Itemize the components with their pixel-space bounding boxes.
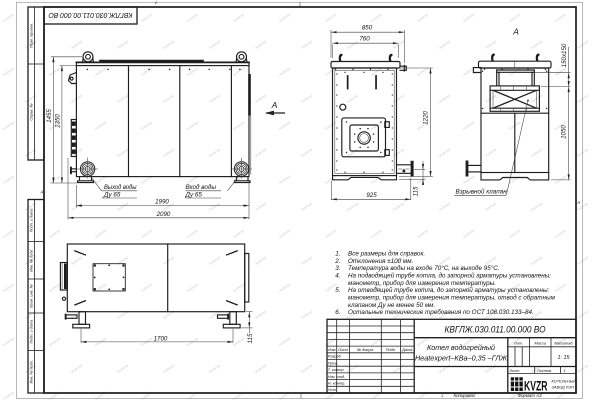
svg-text:клапаном Ду не менее 50 мм.: клапаном Ду не менее 50 мм. (348, 302, 435, 309)
svg-text:А: А (40, 190, 44, 195)
svg-text:Справ. №: Справ. № (30, 103, 34, 120)
svg-text:Отклонения ±100 мм.: Отклонения ±100 мм. (348, 258, 413, 265)
svg-text:ЗАВОД РЭП: ЗАВОД РЭП (552, 384, 575, 389)
svg-text:2.: 2. (334, 258, 340, 265)
svg-text:Формат А3: Формат А3 (518, 393, 543, 398)
svg-text:4.: 4. (335, 272, 340, 279)
svg-text:Нач. отд.: Нач. отд. (328, 374, 345, 379)
svg-text:5.: 5. (335, 287, 340, 294)
svg-text:Утв.: Утв. (328, 387, 337, 392)
svg-text:На подводящей трубе котла, до: На подводящей трубе котла, до запорной а… (348, 271, 551, 279)
svg-text:Т. контр.: Т. контр. (328, 367, 345, 372)
svg-text:манометр, прибор для измерения: манометр, прибор для измерения температу… (348, 279, 496, 287)
svg-text:Дата: Дата (401, 347, 413, 352)
svg-text:Остальные технические требован: Остальные технические требования по ОСТ … (348, 308, 534, 316)
svg-text:850: 850 (362, 25, 373, 32)
svg-text:1350: 1350 (55, 114, 62, 128)
svg-text:Выход воды: Выход воды (104, 183, 137, 191)
svg-text:№ докум.: № докум. (357, 347, 374, 352)
svg-text:Разраб.: Разраб. (328, 354, 342, 359)
svg-text:Подп. и дата: Подп. и дата (30, 320, 34, 344)
svg-text:925: 925 (366, 192, 377, 199)
svg-text:Температура воды на входе 70°С: Температура воды на входе 70°С, на выход… (348, 264, 500, 272)
svg-text:1: 1 (564, 368, 566, 373)
svg-text:А: А (271, 100, 278, 110)
svg-text:Инв. № дубл.: Инв. № дубл. (30, 249, 34, 272)
svg-text:KVZR: KVZR (524, 379, 548, 394)
svg-text:1455: 1455 (46, 109, 53, 123)
svg-text:КОТЕЛЬНЫЙ: КОТЕЛЬНЫЙ (552, 379, 577, 384)
svg-text:2090: 2090 (156, 211, 171, 218)
svg-text:Взам. инв. №: Взам. инв. № (30, 284, 34, 307)
svg-text:115: 115 (247, 333, 254, 343)
svg-text:6.: 6. (335, 309, 340, 316)
svg-text:3.: 3. (335, 265, 340, 272)
svg-text:Лит.: Лит. (513, 340, 523, 345)
svg-text:Подп.: Подп. (386, 347, 396, 352)
svg-text:Лист: Лист (509, 368, 521, 373)
svg-text:манометр, прибор для измерения: манометр, прибор для измерения температу… (348, 294, 556, 302)
svg-text:150х150: 150х150 (561, 43, 568, 67)
svg-text:А: А (576, 200, 580, 205)
svg-text:Ду 65: Ду 65 (185, 192, 203, 199)
svg-text:Подп. и дата: Подп. и дата (30, 209, 34, 233)
svg-text:Копировал: Копировал (454, 393, 476, 398)
svg-text:Ду 65: Ду 65 (103, 192, 121, 199)
svg-text:1220: 1220 (422, 111, 429, 125)
svg-text:Котел водогрейный: Котел водогрейный (427, 343, 495, 352)
svg-text:А: А (512, 26, 519, 36)
svg-text:1700: 1700 (154, 336, 168, 343)
svg-text:Масса: Масса (534, 340, 546, 345)
svg-text:Н. контр.: Н. контр. (328, 381, 346, 386)
svg-text:Перв. примен.: Перв. примен. (30, 23, 34, 48)
svg-text:КВГЛЖ.030.011.00.000 ВО: КВГЛЖ.030.011.00.000 ВО (445, 325, 546, 335)
svg-text:Лист: Лист (337, 347, 349, 352)
svg-text:Пров.: Пров. (328, 360, 338, 365)
svg-text:Масштаб: Масштаб (554, 340, 573, 345)
svg-text:Heatexpert–КВа–0,35 –ГЛЖ: Heatexpert–КВа–0,35 –ГЛЖ (415, 353, 507, 362)
svg-text:На отводящей трубе котла, до з: На отводящей трубе котла, до запорной ар… (348, 286, 550, 294)
svg-text:1.: 1. (335, 250, 340, 257)
svg-text:КВГЛЖ.030.011.00.000 ВО: КВГЛЖ.030.011.00.000 ВО (48, 11, 132, 20)
svg-text:Листов: Листов (536, 368, 551, 373)
svg-text:Изм: Изм (328, 347, 336, 352)
svg-text:1: 1 (441, 393, 443, 398)
svg-text:1: 15: 1: 15 (558, 355, 571, 361)
svg-text:Взрывной клапан: Взрывной клапан (456, 188, 508, 196)
svg-text:115: 115 (413, 186, 420, 196)
svg-text:Все размеры для справок.: Все размеры для справок. (348, 249, 425, 257)
svg-text:1050: 1050 (560, 125, 567, 139)
svg-text:Вход воды: Вход воды (186, 183, 217, 191)
svg-text:760: 760 (359, 36, 370, 43)
svg-text:1990: 1990 (155, 199, 169, 206)
svg-text:Инв. № подл.: Инв. № подл. (30, 360, 34, 384)
